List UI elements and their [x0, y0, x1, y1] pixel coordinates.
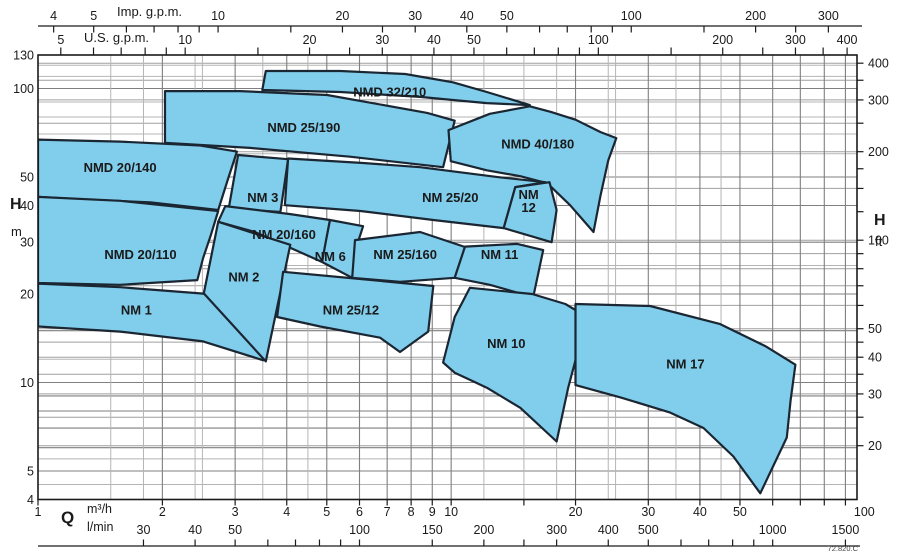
tick-label: 10	[178, 33, 192, 47]
tick-label: 40	[693, 505, 707, 519]
region-label: NM 25/160	[373, 247, 437, 262]
tick-label: 400	[837, 33, 858, 47]
region-label: NMD 20/110	[104, 247, 176, 262]
tick-label: 9	[429, 505, 436, 519]
tick-label: 150	[422, 523, 443, 537]
head-axis-symbol-right: H	[874, 212, 886, 230]
tick-label: 20	[303, 33, 317, 47]
tick-label: 200	[745, 9, 766, 23]
region-label: NM 17	[666, 357, 704, 372]
tick-label: 7	[384, 505, 391, 519]
tick-label: 40	[188, 523, 202, 537]
tick-label: 50	[467, 33, 481, 47]
tick-label: 5	[323, 505, 330, 519]
tick-label: 30	[20, 236, 34, 250]
region-label: NM 11	[481, 247, 519, 262]
tick-label: 100	[854, 505, 875, 519]
tick-label: 30	[375, 33, 389, 47]
tick-label: 30	[137, 523, 151, 537]
tick-label: 400	[868, 57, 889, 71]
tick-label: 10	[211, 9, 225, 23]
tick-label: 200	[712, 33, 733, 47]
tick-label: 20	[569, 505, 583, 519]
region-label: NM 25/12	[323, 302, 379, 317]
tick-label: 1	[35, 505, 42, 519]
tick-label: 10	[444, 505, 458, 519]
tick-label: 1000	[759, 523, 787, 537]
head-axis-unit-m: m	[11, 224, 22, 239]
tick-label: 300	[818, 9, 839, 23]
region-nm-10	[443, 288, 588, 442]
tick-label: 100	[13, 82, 34, 96]
tick-label: 20	[20, 287, 34, 301]
tick-label: 20	[335, 9, 349, 23]
us-gpm-axis-title: U.S. g.p.m.	[84, 30, 149, 45]
head-axis-unit-ft: ft	[875, 234, 882, 249]
tick-label: 100	[349, 523, 370, 537]
tick-label: 100	[588, 33, 609, 47]
tick-label: 300	[868, 93, 889, 107]
tick-label: 30	[408, 9, 422, 23]
tick-label: 4	[27, 493, 34, 507]
flow-axis-unit-lmin: l/min	[87, 520, 113, 534]
tick-label: 4	[283, 505, 290, 519]
region-label: NM 25/20	[422, 190, 478, 205]
region-label: NMD 25/190	[267, 120, 340, 135]
imp-gpm-axis-title: Imp. g.p.m.	[117, 4, 182, 19]
tick-label: 8	[408, 505, 415, 519]
region-label: NM 20/160	[252, 227, 316, 242]
document-reference: 72.820.C	[818, 544, 858, 553]
tick-label: 300	[546, 523, 567, 537]
chart-canvas: NMD 20/140NMD 20/110NM 1NMD 25/190NMD 32…	[0, 0, 912, 560]
tick-label: 50	[20, 171, 34, 185]
tick-label: 30	[641, 505, 655, 519]
tick-label: 6	[356, 505, 363, 519]
tick-label: 40	[868, 351, 882, 365]
region-label: NM 10	[487, 336, 525, 351]
tick-label: 5	[27, 465, 34, 479]
tick-label: 40	[460, 9, 474, 23]
tick-label: 500	[638, 523, 659, 537]
tick-label: 400	[598, 523, 619, 537]
tick-label: 2	[159, 505, 166, 519]
tick-label: 200	[868, 145, 889, 159]
tick-label: 10	[20, 376, 34, 390]
tick-label: 3	[232, 505, 239, 519]
region-label: NM 2	[228, 269, 259, 284]
region-label: NM12	[519, 187, 539, 215]
region-label: NM 6	[315, 249, 346, 264]
tick-label: 50	[228, 523, 242, 537]
tick-label: 100	[621, 9, 642, 23]
flow-axis-symbol: Q	[61, 508, 74, 528]
region-label: NMD 20/140	[84, 160, 157, 175]
tick-label: 40	[427, 33, 441, 47]
head-axis-symbol-left: H	[10, 196, 22, 214]
tick-label: 40	[20, 199, 34, 213]
tick-label: 1500	[832, 523, 860, 537]
region-label: NM 3	[247, 190, 278, 205]
tick-label: 20	[868, 439, 882, 453]
region-label: NM 1	[121, 302, 152, 317]
tick-label: 5	[57, 33, 64, 47]
region-nmd-20-110	[38, 197, 218, 285]
tick-label: 50	[868, 322, 882, 336]
tick-label: 5	[90, 9, 97, 23]
tick-label: 200	[473, 523, 494, 537]
tick-label: 300	[785, 33, 806, 47]
tick-label: 4	[50, 9, 57, 23]
tick-label: 30	[868, 387, 882, 401]
region-label: NMD 32/210	[353, 84, 426, 99]
pump-selection-chart: NMD 20/140NMD 20/110NM 1NMD 25/190NMD 32…	[0, 0, 912, 560]
tick-label: 50	[500, 9, 514, 23]
region-label: NMD 40/180	[501, 136, 574, 151]
flow-axis-unit-m3h: m³/h	[87, 502, 112, 516]
tick-label: 50	[733, 505, 747, 519]
tick-label: 130	[13, 49, 34, 63]
